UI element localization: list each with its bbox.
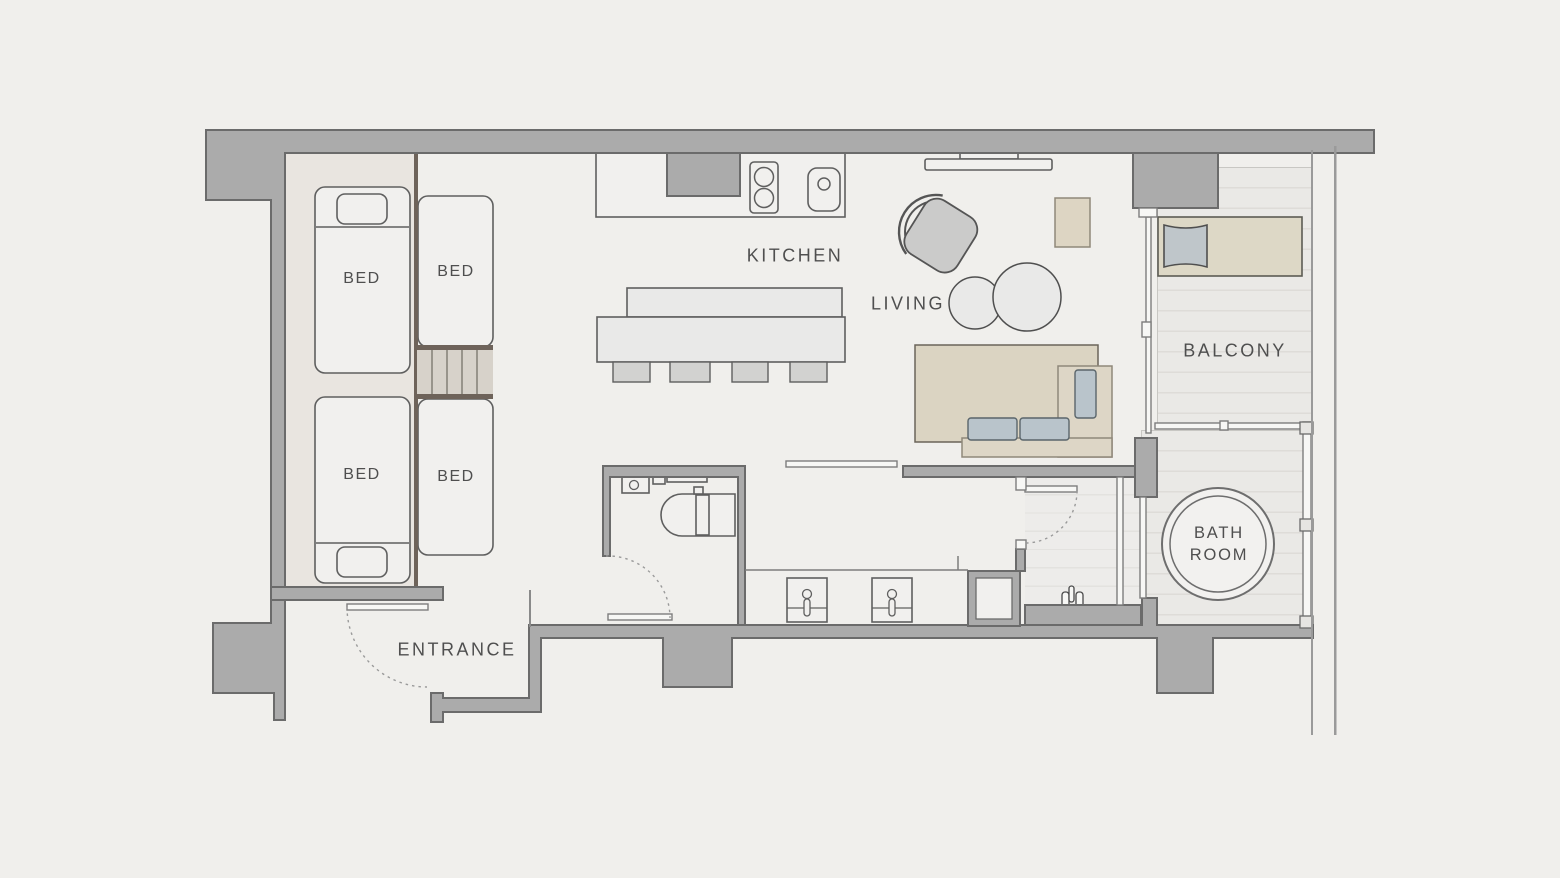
toilet-door-swing [606, 556, 670, 618]
bed-label-4: BED [437, 468, 474, 486]
sofa-cushion [1075, 370, 1096, 418]
window-jamb [1142, 322, 1151, 337]
tv-icon [925, 152, 1052, 170]
stool [613, 362, 650, 382]
pillar-living-bath [1135, 438, 1157, 497]
vanity-sink-2 [872, 578, 912, 622]
entrance-door-leaf [347, 604, 428, 610]
round-table-large [993, 263, 1061, 331]
bed-label-3: BED [343, 466, 380, 484]
entrance-label: ENTRANCE [397, 640, 516, 661]
shower-glass [1117, 477, 1123, 605]
kitchen-island [597, 288, 845, 382]
sofa-cushion [968, 418, 1017, 440]
floorplan: KITCHEN LIVING BALCONY ENTRANCE BATH ROO… [0, 0, 1560, 878]
kitchen-label: KITCHEN [747, 246, 844, 267]
door-jamb [1016, 540, 1026, 549]
bed-3 [315, 397, 410, 583]
dressing-door-swing [1025, 491, 1077, 543]
door-jamb [1016, 477, 1026, 490]
flush-button [694, 487, 703, 494]
wall-kitchen-block [667, 153, 740, 196]
pillow-icon [1164, 225, 1207, 267]
dressing-door-leaf [1025, 486, 1077, 492]
toilet-door-leaf [608, 614, 672, 620]
sofa-cushion [1020, 418, 1069, 440]
balcony-railing [1155, 423, 1311, 429]
pillow-icon [337, 547, 387, 577]
living-label: LIVING [871, 294, 945, 315]
balcony-lounger [1158, 217, 1302, 276]
balcony-label: BALCONY [1183, 341, 1287, 362]
shower-step [1025, 605, 1141, 625]
lounge-chair [885, 181, 987, 283]
shower-mixer-icon [1062, 586, 1083, 607]
bed-label-2: BED [437, 263, 474, 281]
duct-niche-inner [976, 578, 1012, 619]
hand-sink-icon [622, 477, 649, 493]
bathroom-label: BATH ROOM [1190, 522, 1249, 566]
boundary-line [1334, 146, 1337, 735]
boundary-line [1311, 150, 1313, 735]
wall-living-block [1133, 153, 1218, 208]
pillow-icon [337, 194, 387, 224]
bathroom-label-line2: ROOM [1190, 546, 1249, 564]
sliding-door [786, 461, 897, 467]
stairs [417, 345, 493, 399]
vanity-sink-1 [787, 578, 827, 622]
stool [732, 362, 768, 382]
bedroom-bottom-wall [271, 587, 443, 600]
bathroom-label-line1: BATH [1194, 524, 1244, 542]
floorplan-graphic [0, 0, 1560, 878]
bath-glass-left [1140, 497, 1146, 598]
toilet-room-fixtures [622, 474, 735, 536]
window-jamb [1139, 208, 1157, 217]
railing-post [1220, 421, 1228, 430]
toilet-tank [696, 495, 709, 535]
side-table [1055, 198, 1090, 247]
stove-icon [750, 162, 778, 213]
stool [670, 362, 710, 382]
bed-label-1: BED [343, 270, 380, 288]
hallway-top-wall [903, 466, 1135, 477]
stool [790, 362, 827, 382]
dressing-wall-segment [1016, 549, 1025, 571]
